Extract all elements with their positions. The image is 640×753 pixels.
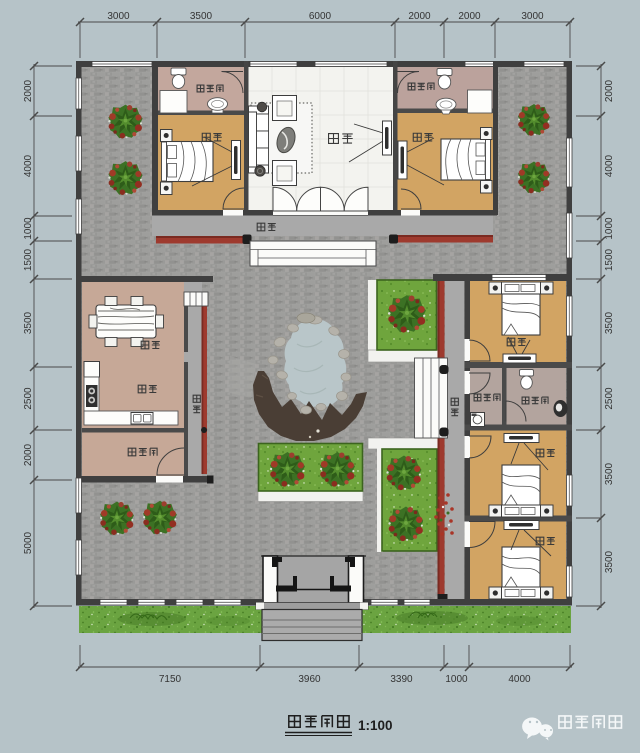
svg-text:2000: 2000 <box>458 11 481 22</box>
svg-text:3000: 3000 <box>107 11 130 22</box>
svg-text:2000: 2000 <box>408 11 431 22</box>
svg-text:4000: 4000 <box>508 674 531 685</box>
svg-text:3500: 3500 <box>604 550 615 573</box>
svg-text:3500: 3500 <box>190 11 213 22</box>
svg-text:6000: 6000 <box>309 11 332 22</box>
svg-text:3500: 3500 <box>23 311 34 334</box>
svg-text:1:100: 1:100 <box>358 718 393 733</box>
svg-text:2000: 2000 <box>23 443 34 466</box>
svg-text:2000: 2000 <box>604 79 615 102</box>
svg-text:7150: 7150 <box>159 674 182 685</box>
svg-text:1000: 1000 <box>604 217 615 240</box>
svg-text:1000: 1000 <box>445 674 468 685</box>
svg-text:4000: 4000 <box>23 154 34 177</box>
svg-text:3500: 3500 <box>604 462 615 485</box>
svg-text:1000: 1000 <box>23 217 34 240</box>
svg-text:3960: 3960 <box>298 674 321 685</box>
svg-text:1500: 1500 <box>604 248 615 271</box>
svg-text:2500: 2500 <box>23 387 34 410</box>
svg-text:3500: 3500 <box>604 311 615 334</box>
svg-text:3000: 3000 <box>521 11 544 22</box>
svg-text:3390: 3390 <box>390 674 413 685</box>
svg-text:2500: 2500 <box>604 387 615 410</box>
svg-text:4000: 4000 <box>604 154 615 177</box>
svg-text:5000: 5000 <box>23 531 34 554</box>
svg-text:1500: 1500 <box>23 248 34 271</box>
svg-text:2000: 2000 <box>23 79 34 102</box>
